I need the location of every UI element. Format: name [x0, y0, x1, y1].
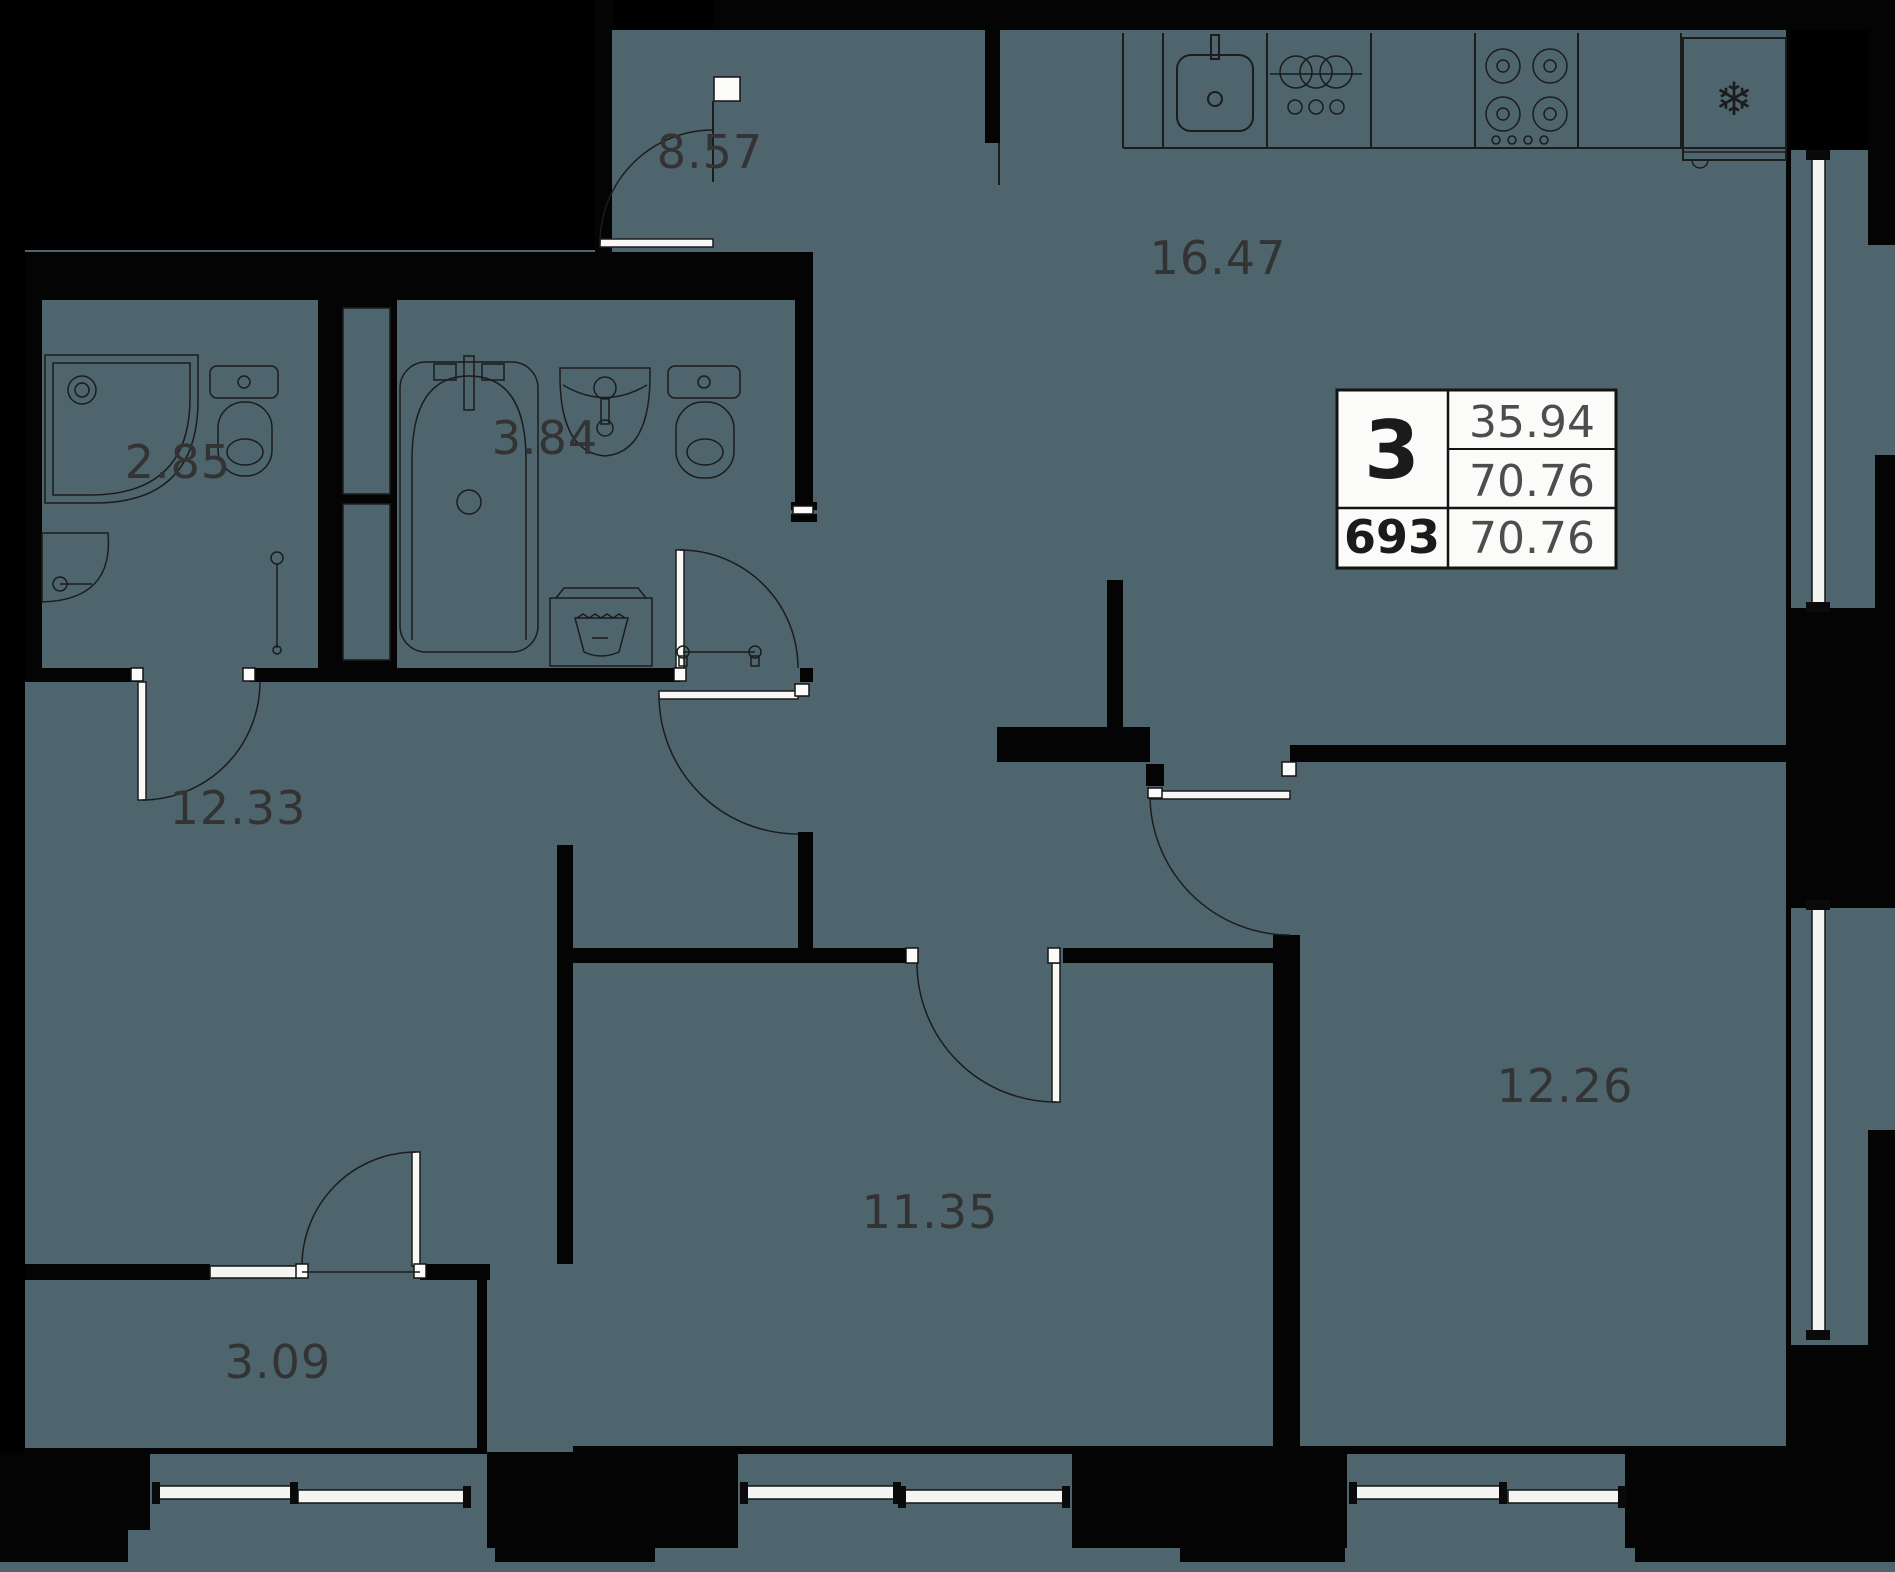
label-balcony: 3.09	[225, 1335, 331, 1389]
label-bedroom-left: 12.33	[170, 781, 307, 835]
label-shower-room: 2.85	[125, 435, 231, 489]
floor-right-bay	[1347, 1452, 1625, 1562]
middle-bay-window-left	[746, 1486, 896, 1499]
balcony-bay-window-right	[298, 1490, 470, 1503]
middle-bay-window-right	[903, 1490, 1065, 1503]
total-area-repeat: 70.76	[1469, 513, 1595, 564]
floorplan-canvas: ❄	[0, 0, 1895, 1572]
snowflake-icon: ❄	[1715, 72, 1754, 126]
balcony-wall-window	[210, 1266, 300, 1278]
label-bedroom-right: 12.26	[1497, 1059, 1634, 1113]
living-area: 35.94	[1469, 397, 1595, 448]
rooms-count: 3	[1364, 404, 1420, 497]
right-bay-window-right	[1508, 1490, 1620, 1503]
label-bathroom: 3.84	[492, 411, 598, 465]
label-hallway: 8.57	[657, 125, 763, 179]
right-bay-window-left	[1355, 1486, 1501, 1499]
unit-number: 693	[1344, 510, 1440, 564]
bedroom-right-side-window	[1812, 908, 1825, 1332]
label-bedroom-middle: 11.35	[862, 1185, 999, 1239]
floor-balcony-bay	[150, 1452, 487, 1562]
floorplan-svg: ❄	[0, 0, 1895, 1572]
kitchen-side-window	[1812, 158, 1825, 605]
total-area: 70.76	[1469, 456, 1595, 507]
balcony-bay-window-left	[158, 1486, 292, 1499]
info-table: 3 35.94 70.76 693 70.76	[1337, 390, 1616, 568]
duct-shaft	[343, 308, 390, 660]
label-kitchen-living: 16.47	[1150, 231, 1287, 285]
